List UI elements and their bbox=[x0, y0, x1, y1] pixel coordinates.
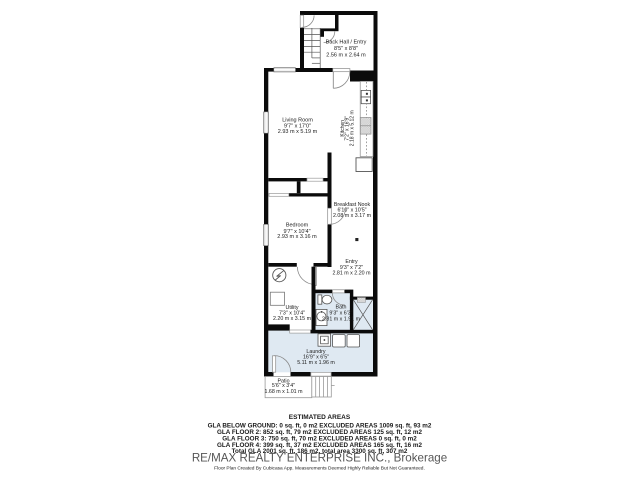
svg-text:Back Hall / Entry: Back Hall / Entry bbox=[326, 39, 367, 45]
svg-text:2.08 m x 3.17 m: 2.08 m x 3.17 m bbox=[333, 213, 372, 219]
svg-text:Bedroom: Bedroom bbox=[286, 223, 309, 229]
svg-text:Floor Plan Created By Cubicasa: Floor Plan Created By Cubicasa App. Meas… bbox=[214, 465, 425, 471]
svg-text:1.68 m x 1.01 m: 1.68 m x 1.01 m bbox=[265, 389, 304, 395]
svg-text:2.81 m x 2.20 m: 2.81 m x 2.20 m bbox=[333, 270, 372, 276]
svg-text:2.20 m x 3.15 m: 2.20 m x 3.15 m bbox=[273, 316, 312, 322]
svg-text:RE/MAX REALTY ENTERPRISE INC.,: RE/MAX REALTY ENTERPRISE INC., Brokerage bbox=[192, 452, 447, 465]
svg-text:2.18 m x 5.12 m: 2.18 m x 5.12 m bbox=[350, 110, 356, 146]
svg-text:2.56 m x 2.64 m: 2.56 m x 2.64 m bbox=[326, 53, 366, 59]
svg-text:8'5" x 8'8": 8'5" x 8'8" bbox=[334, 46, 358, 52]
svg-text:5'6" x 3'4": 5'6" x 3'4" bbox=[272, 383, 295, 389]
svg-text:5.11 m x 1.96 m: 5.11 m x 1.96 m bbox=[297, 360, 335, 366]
svg-text:2.93 m x 5.19 m: 2.93 m x 5.19 m bbox=[278, 129, 318, 135]
svg-text:2.93 m x 3.16 m: 2.93 m x 3.16 m bbox=[277, 234, 317, 240]
svg-text:2.81 m x 1.91 m: 2.81 m x 1.91 m bbox=[322, 317, 361, 323]
svg-text:ESTIMATED AREAS: ESTIMATED AREAS bbox=[289, 414, 351, 421]
